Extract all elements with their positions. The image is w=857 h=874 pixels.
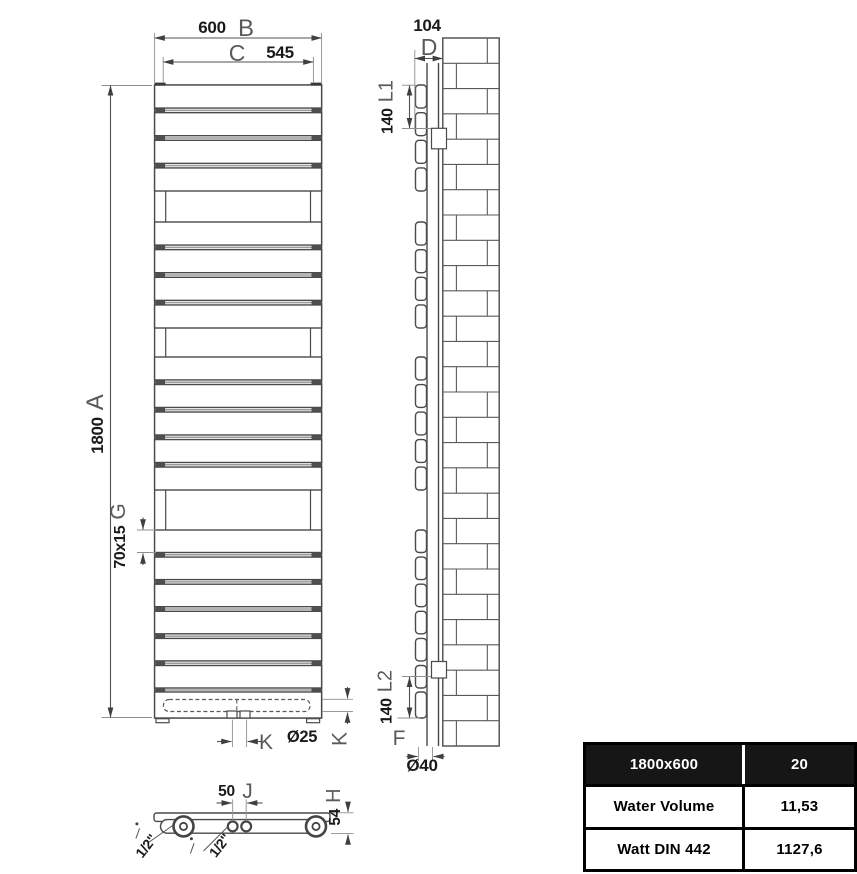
radiator-panel [155,385,322,408]
collector-cap-left [155,83,166,86]
nipple-left [155,164,165,168]
spec-row-value: 1127,6 [745,830,854,869]
foot-right [307,719,320,723]
nipple-left [155,408,165,412]
dim-width-value: 600 [198,18,225,37]
nipple-right [312,408,322,412]
side-panel-edge [416,222,427,245]
side-panel-edge [416,584,427,607]
spec-table-header-row: 1800x600 20 [586,745,854,787]
radiator-panel [155,638,322,661]
nipple-left [155,108,165,112]
center-connection-2 [241,822,251,832]
dim-depth-letter: D [421,34,438,60]
nipple-right [312,136,322,140]
side-panel-edge [416,85,427,108]
side-panel-edge [416,140,427,163]
spec-row-label: Watt DIN 442 [586,830,745,869]
leader-tick [190,843,194,853]
radiator-panel [155,611,322,634]
foot-left [156,719,169,723]
radiator-panel [155,467,322,490]
nipple-right [312,164,322,168]
side-panel-edge [416,277,427,300]
side-panel-edge [416,168,427,191]
dim-height-value: 1800 [88,417,107,454]
radiator-panel [155,666,322,689]
bottom-panel [155,692,322,718]
radiator-spec-sheet: 600 B C 545 1800A 70x15G K Ø25 K [0,0,857,874]
side-panel-edges [416,85,427,688]
connection-tab-left [227,711,237,718]
radiator-panel [155,557,322,580]
nipple-left [155,136,165,140]
nipple-right [312,634,322,638]
dim-width-letter: B [238,15,254,42]
radiator-panel [155,85,322,108]
nipple-right [312,607,322,611]
center-connection-1 [228,822,238,832]
side-panel-edge [416,305,427,328]
dim-bottom-depth-value: 54 [327,808,344,825]
nipple-right [312,245,322,249]
dim-height-label: 1800A [82,394,109,454]
dim-collector-letter: K [329,732,352,746]
connection-tab-right [240,711,250,718]
side-panel-edge [416,557,427,580]
nipple-right [312,273,322,277]
thread-label-left: 1/2" [132,831,160,860]
side-panel-edge [416,467,427,490]
dim-conn-diameter: Ø25 [287,728,317,746]
end-cap-right-hole [312,823,319,830]
spec-row-value: 11,53 [745,787,854,826]
nipple-left [155,580,165,584]
radiator-panel [155,140,322,163]
dim-conn-spacing-value: 50 [218,783,235,800]
dim-height-letter: A [82,394,109,410]
dim-profile-value: 70x15 [112,525,129,568]
dim-bracket-bottom-letter: L2 [375,670,397,692]
dim-bottom-depth-letter: H [323,788,345,802]
radiator-panel [155,530,322,553]
dim-depth-value: 104 [413,16,441,35]
spec-table-row-watt: Watt DIN 442 1127,6 [586,830,854,869]
side-panel-edge [416,113,427,136]
radiator-panel [155,168,322,191]
nipple-left [155,607,165,611]
dim-conn-spacing-letter: J [242,780,253,803]
wall-bracket-bottom [432,662,447,679]
dim-inner-width-letter: C [229,40,246,66]
nipple-right [312,301,322,305]
front-panels [155,85,322,692]
spec-table-row-water-volume: Water Volume 11,53 [586,787,854,829]
nipple-left [155,273,165,277]
side-panel-edge [416,412,427,435]
thread-label-center: 1/2" [206,831,234,860]
side-panel-edge [416,611,427,634]
side-view: 104 D 140L1 140L2 F Ø40 [375,16,500,775]
radiator-panel [155,584,322,607]
side-panel-edge [416,385,427,408]
nipple-left [155,435,165,439]
nipple-left [155,661,165,665]
wall-bracket-top [432,128,447,149]
nipple-left [155,634,165,638]
radiator-panel [155,113,322,136]
front-view: 600 B C 545 1800A 70x15G K Ø25 K [82,15,353,754]
spec-panel-count: 20 [745,745,854,784]
nipple-right [312,661,322,665]
side-panel-edge [416,250,427,273]
radiator-panel [155,250,322,273]
nipple-right [312,380,322,384]
dim-inner-width-value: 545 [266,43,293,62]
dim-bracket-top-value: 140 [380,108,397,134]
nipple-right [312,463,322,467]
side-panel-edge [416,638,427,661]
nipple-right [312,108,322,112]
dim-conn-letter: K [259,731,273,754]
side-panel-edge [416,357,427,380]
dim-bracket-top-label: 140L1 [376,80,398,134]
radiator-panel [155,222,322,245]
dim-bracket-bottom-value: 140 [379,698,396,724]
leader-dot [135,822,138,825]
side-panel-edge [416,530,427,553]
radiator-panel [155,440,322,463]
dim-tube-letter: F [393,727,406,750]
nipple-right [312,435,322,439]
nipple-right [312,580,322,584]
nipple-left [155,553,165,557]
nipple-left [155,463,165,467]
leader-dot [190,837,193,840]
nipple-left [155,380,165,384]
dim-bracket-bottom-label: 140L2 [375,670,397,724]
dim-profile-letter: G [107,503,130,519]
spec-table: 1800x600 20 Water Volume 11,53 Watt DIN … [583,742,857,872]
radiator-panel [155,305,322,328]
leader-tick [136,828,140,838]
radiator-panel [155,277,322,300]
radiator-panel [155,412,322,435]
dim-bottom-depth-label: 54H [323,788,345,825]
spec-model: 1800x600 [586,745,745,784]
side-bottom-panel-edge [416,692,427,718]
dim-bracket-top-letter: L1 [376,80,398,102]
spec-row-label: Water Volume [586,787,745,826]
bottom-view: 50 J 54H 1/2" 1/2" [132,780,353,861]
nipple-right [312,553,322,557]
end-cap-left-hole [180,823,187,830]
nipple-left [155,301,165,305]
collector-cap-right [311,83,322,86]
dim-tube-diameter: Ø40 [406,756,437,775]
side-panel-edge [416,440,427,463]
radiator-panel [155,357,322,380]
nipple-left [155,245,165,249]
